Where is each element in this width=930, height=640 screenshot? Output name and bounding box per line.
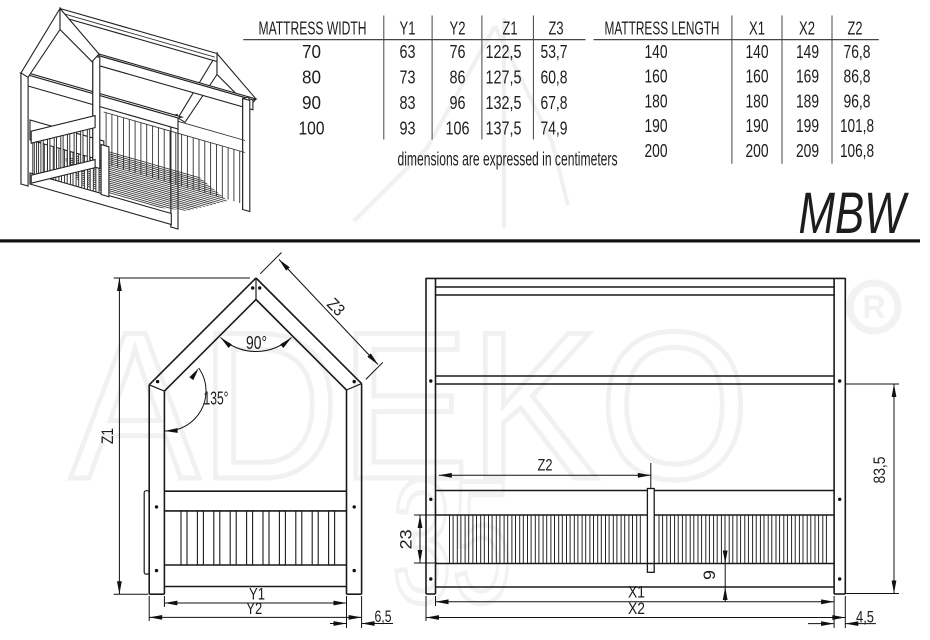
svg-text:96: 96	[450, 92, 466, 113]
svg-text:MATTRESS WIDTH: MATTRESS WIDTH	[259, 18, 367, 39]
svg-text:132,5: 132,5	[486, 92, 522, 113]
svg-text:140: 140	[746, 41, 769, 62]
svg-text:MATTRESS LENGTH: MATTRESS LENGTH	[605, 18, 720, 39]
svg-text:101,8: 101,8	[840, 115, 874, 136]
svg-text:83,5: 83,5	[870, 457, 889, 484]
svg-text:9: 9	[700, 570, 719, 580]
svg-text:dimensions are expressed in ce: dimensions are expressed in centimeters	[398, 150, 618, 171]
svg-text:199: 199	[796, 115, 819, 136]
svg-text:MBW: MBW	[799, 181, 910, 246]
svg-text:137,5: 137,5	[486, 118, 522, 139]
svg-text:Y2: Y2	[246, 599, 262, 618]
svg-text:149: 149	[796, 41, 819, 62]
svg-text:160: 160	[746, 66, 769, 87]
svg-text:160: 160	[645, 66, 668, 87]
svg-text:90: 90	[302, 92, 321, 113]
svg-text:189: 189	[796, 90, 819, 111]
svg-text:53,7: 53,7	[541, 41, 568, 62]
svg-text:180: 180	[746, 90, 769, 111]
svg-text:96,8: 96,8	[844, 90, 871, 111]
svg-text:60,8: 60,8	[541, 67, 568, 88]
svg-text:90°: 90°	[246, 333, 267, 353]
svg-text:X2: X2	[799, 18, 815, 39]
svg-text:6,5: 6,5	[375, 607, 392, 626]
svg-text:190: 190	[746, 115, 769, 136]
svg-text:X2: X2	[628, 599, 645, 618]
svg-text:67,8: 67,8	[541, 92, 568, 113]
svg-text:23: 23	[397, 529, 416, 549]
svg-text:76: 76	[450, 41, 466, 62]
svg-text:86: 86	[450, 67, 466, 88]
svg-text:190: 190	[645, 115, 668, 136]
svg-text:122,5: 122,5	[486, 41, 522, 62]
svg-text:80: 80	[302, 67, 321, 88]
svg-text:Z2: Z2	[848, 18, 863, 39]
svg-text:86,8: 86,8	[844, 66, 871, 87]
svg-text:106: 106	[446, 118, 470, 139]
svg-text:70: 70	[302, 41, 321, 62]
svg-text:4,5: 4,5	[856, 608, 874, 627]
svg-text:Z1: Z1	[98, 428, 117, 444]
svg-text:106,8: 106,8	[840, 140, 874, 161]
svg-text:Y1: Y1	[400, 18, 416, 39]
svg-text:Y2: Y2	[450, 18, 466, 39]
svg-text:X1: X1	[749, 18, 765, 39]
svg-text:R: R	[862, 289, 885, 325]
svg-text:74,9: 74,9	[541, 118, 568, 139]
svg-text:200: 200	[746, 140, 769, 161]
svg-text:100: 100	[299, 118, 325, 139]
svg-text:135°: 135°	[204, 389, 229, 409]
svg-text:169: 169	[796, 66, 819, 87]
svg-text:Z1: Z1	[503, 18, 518, 39]
svg-text:200: 200	[645, 140, 668, 161]
svg-text:83: 83	[400, 92, 416, 113]
svg-text:209: 209	[796, 140, 819, 161]
svg-text:180: 180	[645, 90, 668, 111]
svg-text:127,5: 127,5	[486, 67, 522, 88]
svg-text:140: 140	[645, 41, 668, 62]
svg-text:Z3: Z3	[549, 18, 564, 39]
svg-text:63: 63	[400, 41, 416, 62]
svg-text:76,8: 76,8	[844, 41, 871, 62]
svg-text:93: 93	[400, 118, 416, 139]
svg-text:Z2: Z2	[538, 455, 553, 474]
svg-text:73: 73	[400, 67, 416, 88]
